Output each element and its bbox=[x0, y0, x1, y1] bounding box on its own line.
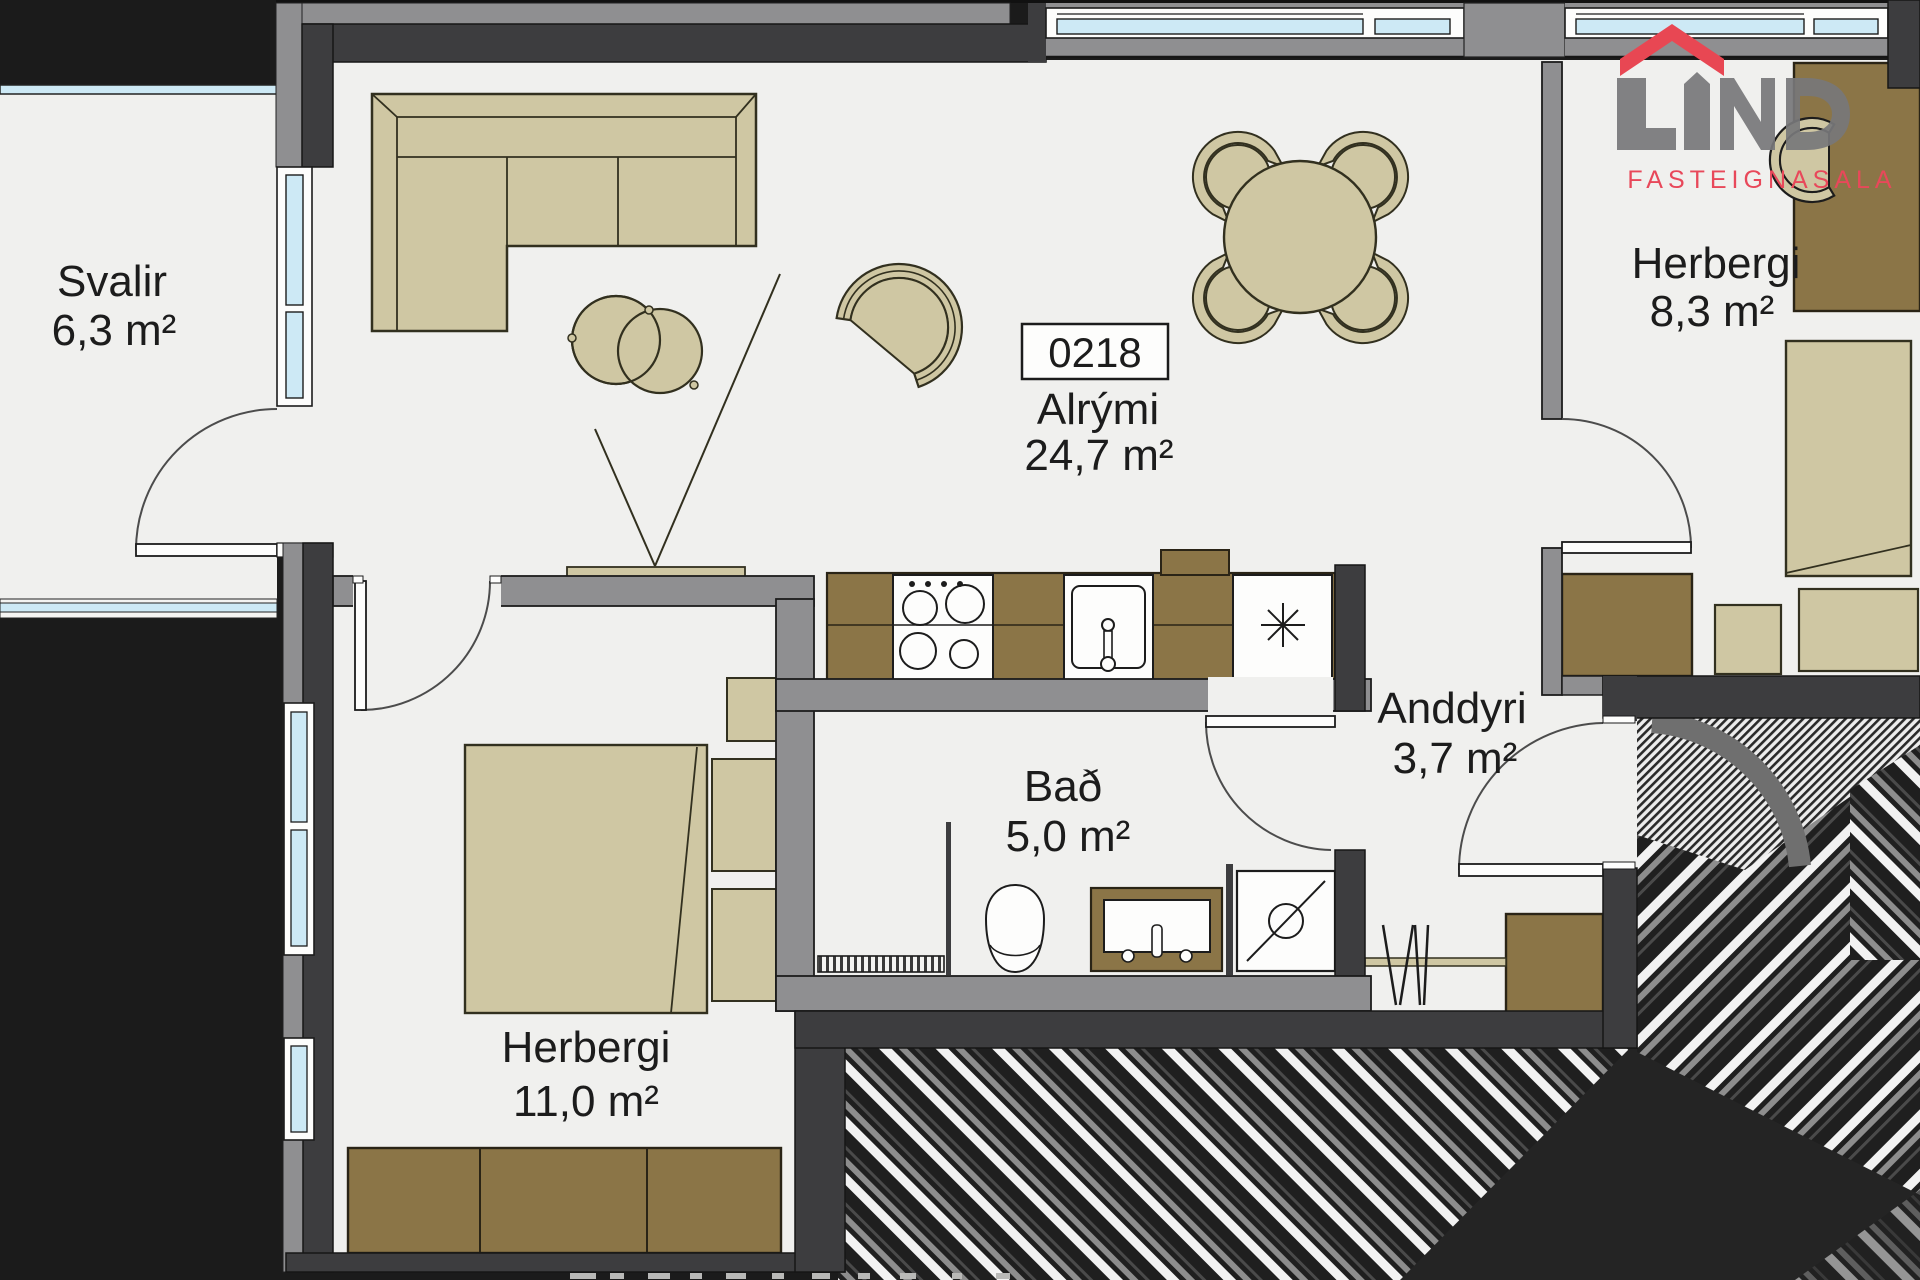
svg-text:FASTEIGNASALA: FASTEIGNASALA bbox=[1627, 166, 1896, 194]
svg-text:Alrými: Alrými bbox=[1037, 385, 1159, 434]
svg-text:8,3 m²: 8,3 m² bbox=[1650, 287, 1775, 336]
svg-text:Herbergi: Herbergi bbox=[502, 1023, 671, 1072]
svg-text:5,0 m²: 5,0 m² bbox=[1006, 812, 1131, 861]
svg-text:Bað: Bað bbox=[1024, 762, 1102, 811]
svg-text:11,0 m²: 11,0 m² bbox=[513, 1077, 659, 1126]
svg-text:0218: 0218 bbox=[1048, 329, 1141, 376]
svg-text:24,7 m²: 24,7 m² bbox=[1024, 431, 1173, 480]
svg-text:Herbergi: Herbergi bbox=[1632, 239, 1801, 288]
svg-text:6,3 m²: 6,3 m² bbox=[52, 306, 177, 355]
svg-text:Anddyri: Anddyri bbox=[1377, 684, 1526, 733]
svg-text:Svalir: Svalir bbox=[57, 257, 167, 306]
svg-text:3,7 m²: 3,7 m² bbox=[1393, 734, 1518, 783]
